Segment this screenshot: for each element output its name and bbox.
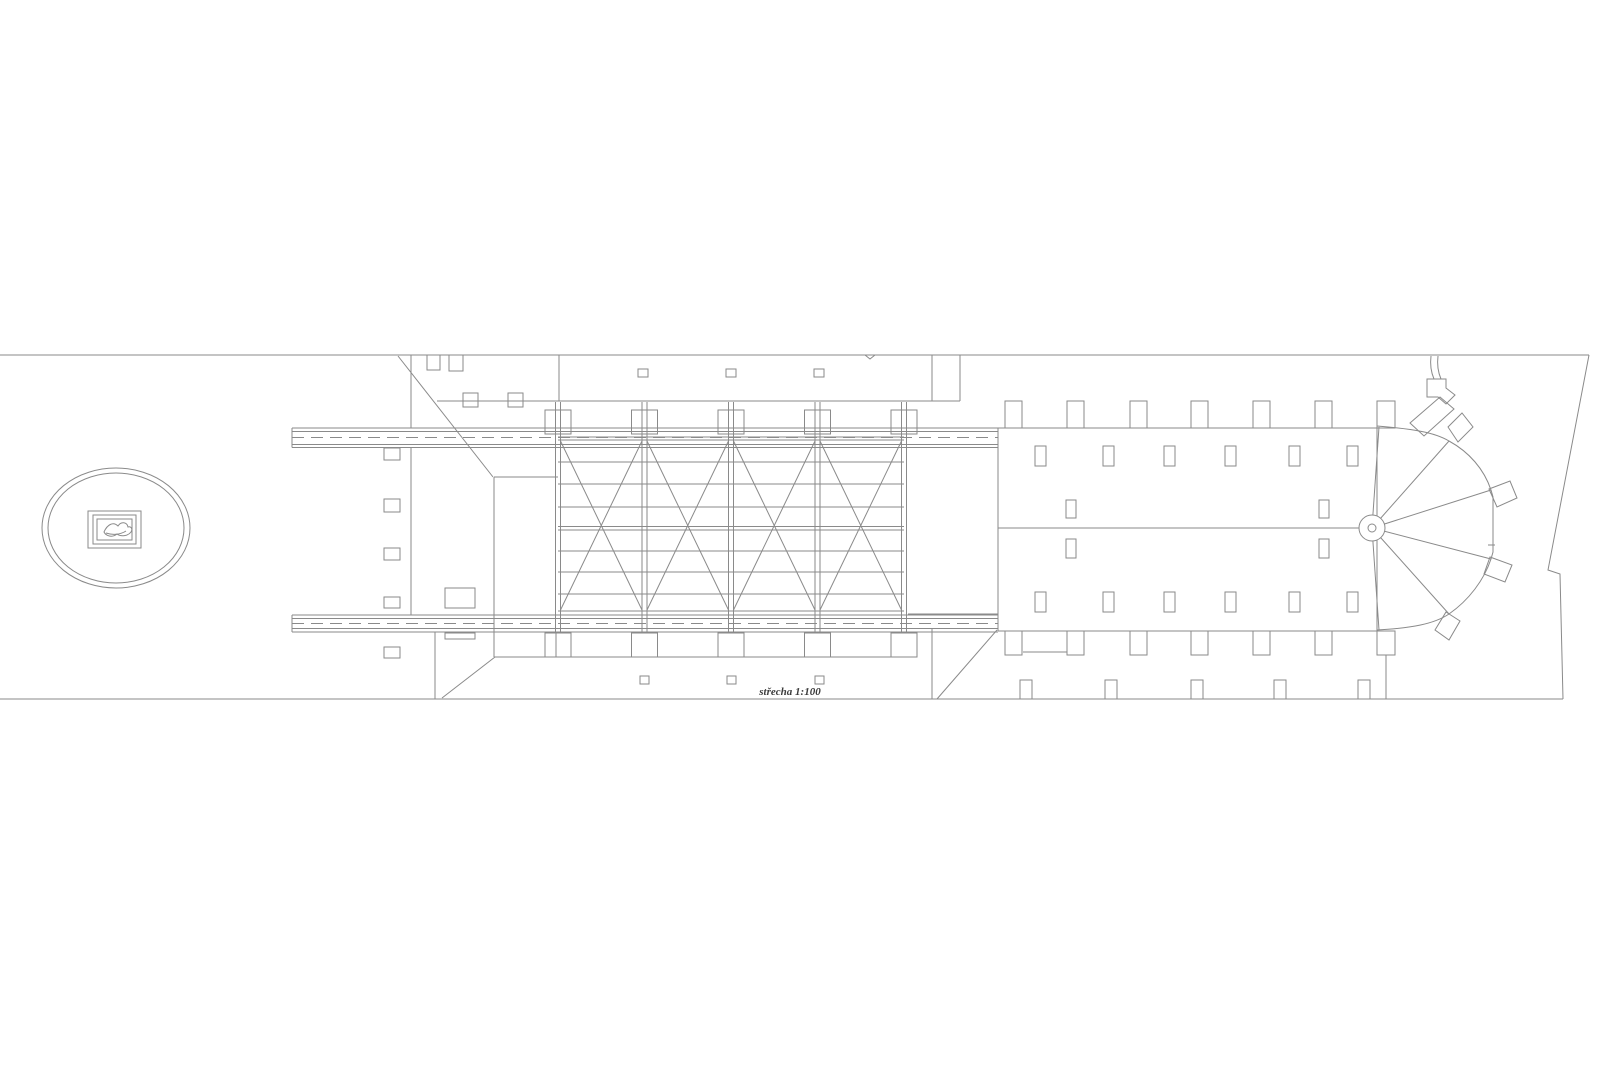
group-truss-bracing (561, 441, 902, 610)
group-courtyard-walls (908, 448, 998, 615)
roof-plan-sheet: střecha 1:100 (0, 0, 1600, 1066)
group-north-wing (411, 355, 960, 615)
group-apse-buttresses (1410, 397, 1517, 640)
roof-plan-svg: střecha 1:100 (0, 0, 1600, 1066)
drawing-scale-label: střecha 1:100 (758, 686, 821, 698)
group-nave-roof (998, 401, 1395, 699)
group-apse-hub (1359, 515, 1385, 541)
drawing-geometry (0, 355, 1589, 699)
group-garden-ellipse-emblem (42, 468, 190, 588)
group-apse-stack (1427, 356, 1455, 404)
group-apse-roof (1372, 426, 1495, 630)
group-truss-purlins (558, 437, 904, 611)
